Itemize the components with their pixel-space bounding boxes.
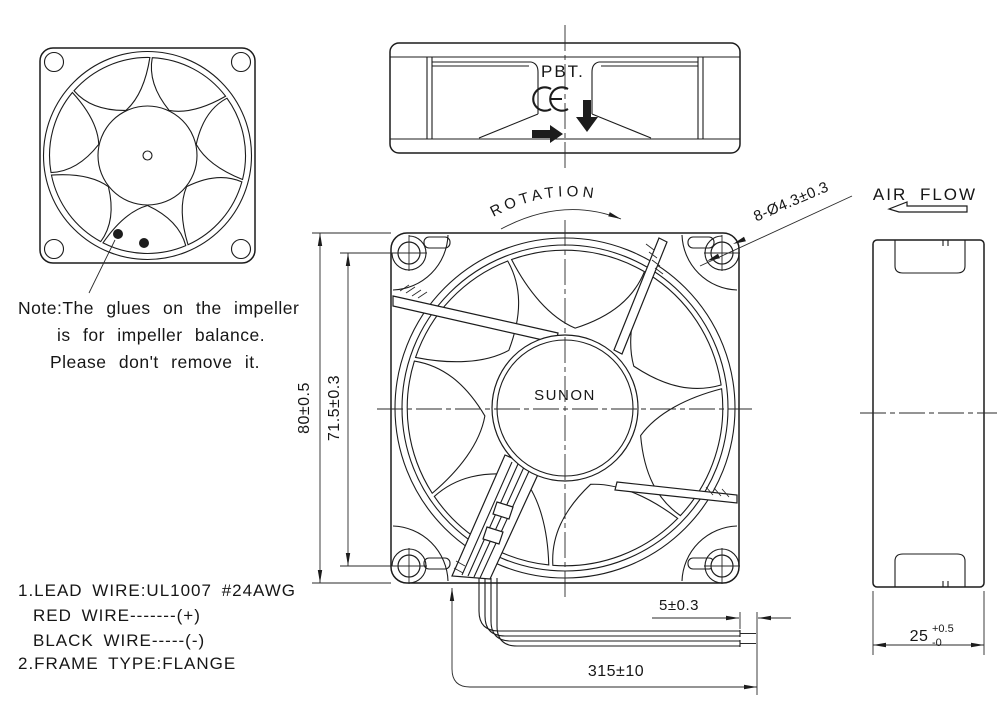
spec-line-2: RED WIRE-------(+) [33, 606, 201, 625]
right-notches [943, 240, 948, 587]
dim-depth-tol-minus: -0 [932, 637, 942, 649]
rotation-direction-arrow-icon [532, 125, 563, 143]
dim-depth-tol-plus: +0.5 [932, 623, 954, 635]
glue-leader-line [89, 240, 115, 293]
side-venturi-right [592, 62, 698, 138]
airflow-text: AIR FLOW [873, 185, 977, 204]
rear-frame [40, 48, 255, 263]
rear-hole-tr [232, 53, 251, 72]
right-recess-top [895, 240, 965, 273]
rear-hub [98, 106, 197, 205]
lead-wires [479, 578, 756, 647]
rear-hole-tl [45, 53, 64, 72]
spec-line-3: BLACK WIRE-----(-) [33, 631, 205, 650]
dim-hole-pitch: 71.5±0.3 [326, 253, 400, 566]
dim-strip-text: 5±0.3 [659, 597, 699, 614]
rotation-arc-arrow [501, 210, 621, 229]
spec-line-4: 2.FRAME TYPE:FLANGE [18, 654, 236, 673]
right-frame [873, 240, 984, 587]
note-line-1: Note:The glues on the impeller [18, 298, 299, 318]
note-line-2: is for impeller balance. [57, 325, 265, 345]
flange-slot-tr [688, 237, 714, 248]
material-label: PBT. [541, 62, 585, 81]
note-line-3: Please don't remove it. [50, 352, 260, 372]
rotation-label: ROTATION [488, 183, 621, 229]
dim-hole-pitch-text: 71.5±0.3 [326, 375, 343, 441]
rear-impeller-rim [44, 52, 252, 260]
dim-lead-text: 315±10 [588, 663, 644, 680]
glue-dot-2 [139, 238, 149, 248]
strut-right [615, 482, 737, 503]
glue-note: Note:The glues on the impeller is for im… [18, 298, 299, 372]
rear-view [40, 48, 255, 293]
top-side-view: PBT. [390, 25, 740, 171]
dim-width: 80±0.5 [296, 233, 391, 583]
rear-shaft-center [143, 151, 152, 160]
dim-holes-text: 8-Ø4.3±0.3 [751, 178, 831, 225]
rear-hole-bl [45, 240, 64, 259]
rotation-text: ROTATION [488, 183, 599, 220]
spec-line-1: 1.LEAD WIRE:UL1007 #24AWG [18, 581, 296, 600]
wire-stripped-tips [740, 634, 756, 644]
dim-depth-text: 25 [910, 628, 929, 645]
wire-spec-note: 1.LEAD WIRE:UL1007 #24AWG RED WIRE------… [18, 581, 296, 673]
fan-technical-drawing: Note:The glues on the impeller is for im… [0, 0, 1000, 722]
strut-left [393, 296, 558, 343]
right-recess-bottom [895, 554, 965, 587]
right-side-view [860, 240, 997, 587]
glue-dot-1 [113, 229, 123, 239]
side-venturi-left [432, 62, 538, 138]
flange-slot-br [688, 558, 714, 569]
front-view: SUNON [377, 220, 752, 601]
dim-width-text: 80±0.5 [296, 382, 313, 434]
rear-hole-br [232, 240, 251, 259]
airflow-label: AIR FLOW [873, 185, 977, 212]
drawing-canvas: Note:The glues on the impeller is for im… [0, 0, 1000, 722]
airflow-direction-arrow-icon [576, 100, 598, 132]
dim-depth: 25 +0.5 -0 [873, 591, 984, 655]
